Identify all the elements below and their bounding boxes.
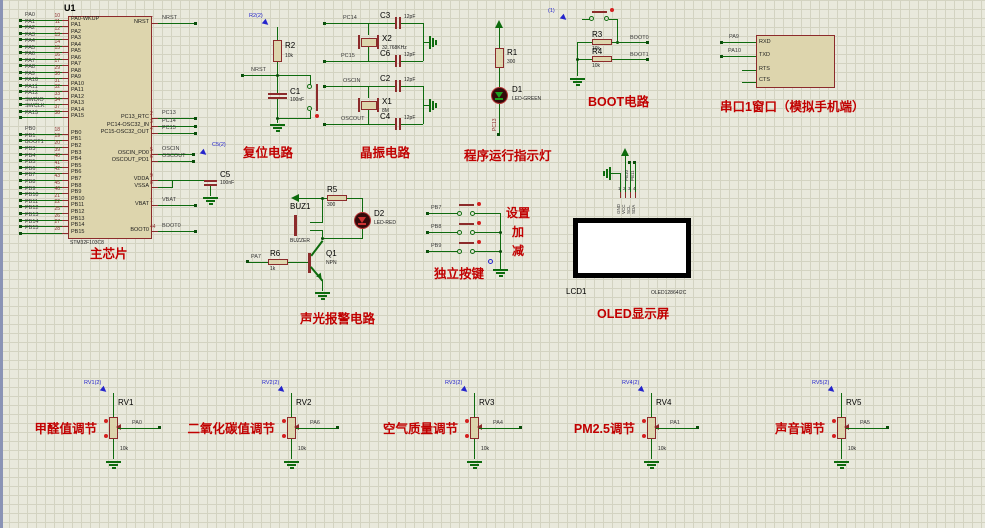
wire (368, 110, 369, 124)
wire-end-dot (19, 232, 22, 235)
crystal[interactable] (361, 101, 377, 110)
wire (325, 124, 395, 125)
pot-net-label: PA5 (860, 421, 870, 427)
cap-ref: C2 (380, 75, 390, 83)
ground-icon (209, 203, 213, 205)
pot-pin-dot (642, 434, 646, 438)
boot-r-value: 10k (592, 64, 600, 69)
wire-end-dot (194, 132, 197, 135)
pot-power-flag-label: RV5(2) (812, 381, 829, 387)
chip-pin (62, 173, 68, 174)
cap-ref: C6 (380, 50, 390, 58)
pot-power-flag-label: RV1(2) (84, 381, 101, 387)
button-contact (457, 211, 462, 216)
pin-number: 39 (48, 148, 60, 153)
key-function-label: 设置 (506, 207, 530, 219)
pin-number: 5 (150, 148, 153, 153)
pot-value: 10k (298, 447, 306, 452)
oled-pin-number: 3 (628, 187, 631, 192)
pin-number: 34 (48, 98, 60, 103)
pin-inner-name: VSSA (71, 184, 149, 190)
pin-number: 13 (48, 33, 60, 38)
ground-icon[interactable] (284, 461, 299, 463)
crystal-title: 晶振电路 (360, 147, 410, 160)
pot-pin-dot (465, 419, 469, 423)
pin-number: 4 (150, 127, 153, 132)
key-function-label: 加 (512, 226, 524, 238)
wire (288, 262, 308, 263)
ground-icon[interactable] (467, 461, 482, 463)
xtal-ref: X2 (382, 35, 392, 43)
pot-function-label: PM2.5调节 (574, 423, 635, 436)
wire-end-dot (646, 41, 649, 44)
wire (499, 27, 500, 48)
wire (277, 99, 278, 118)
pot-ref: RV4 (656, 399, 671, 407)
pin-net-label: PA10 (25, 78, 38, 84)
ground-icon (576, 84, 580, 86)
wire-end-dot (19, 116, 22, 119)
pin-number: 22 (48, 200, 60, 205)
power-flag-icon[interactable] (278, 386, 286, 394)
pin-number: 27 (48, 220, 60, 225)
pin-net-label: SWCLK (25, 104, 45, 110)
wire (172, 180, 173, 188)
power-flag-icon[interactable] (100, 386, 108, 394)
wire-end-dot (19, 90, 22, 93)
r6-ref: R6 (270, 250, 280, 258)
ground-icon (432, 38, 434, 47)
wire (158, 180, 172, 181)
wire (841, 393, 842, 417)
pot-power-flag-label: RV3(2) (445, 381, 462, 387)
wire-end-dot (19, 212, 22, 215)
wire-end-dot (19, 64, 22, 67)
pin-inner-name: PB9 (71, 190, 81, 196)
terminal-pin-name: RTS (759, 67, 770, 73)
pa9-net-label: PA9 (729, 35, 739, 41)
ground-icon[interactable] (570, 78, 585, 80)
wire-end-dot (19, 77, 22, 80)
crystal-plate (377, 35, 379, 49)
button-contact (307, 84, 312, 89)
pin-number: 12 (48, 27, 60, 32)
resistor[interactable] (592, 39, 612, 45)
wire (474, 393, 475, 417)
wire (651, 393, 652, 417)
wire-end-dot (19, 192, 22, 195)
chip-pin (62, 193, 68, 194)
buz1-ref: BUZ1 (290, 203, 310, 211)
cap-value: 12pF (404, 15, 415, 20)
pushbutton[interactable] (459, 204, 474, 206)
chip-pin (62, 213, 68, 214)
wire (325, 61, 395, 62)
wire-end-dot (194, 230, 197, 233)
c5-value: 100nF (220, 181, 234, 186)
pin-number: 26 (48, 214, 60, 219)
pin-number: 29 (48, 66, 60, 71)
wire-end-dot (19, 179, 22, 182)
chip-label: 主芯片 (90, 248, 128, 261)
ground-icon[interactable] (270, 124, 285, 126)
pot-pin-dot (104, 419, 108, 423)
pot-net-label: PA6 (310, 421, 320, 427)
chip-ref: U1 (64, 4, 76, 13)
wire-end-dot (336, 426, 339, 429)
keys-title: 独立按键 (434, 268, 484, 281)
wire (612, 59, 648, 60)
capacitor[interactable] (395, 55, 397, 67)
wire (322, 230, 323, 238)
wire (158, 205, 195, 206)
pin-number: 21 (48, 194, 60, 199)
pin-net-label: PC15 (162, 126, 176, 132)
chip-pin (62, 206, 68, 207)
wire (401, 86, 423, 87)
boot-r-ref: R3 (592, 31, 602, 39)
pin-number: 6 (150, 155, 153, 160)
wire (499, 104, 500, 135)
pushbutton[interactable] (316, 84, 318, 111)
chip-pin (62, 78, 68, 79)
pc13-net-label: PC13 (493, 118, 498, 131)
pin-inner-name: PC14-OSC32_IN (71, 123, 149, 129)
wire (277, 27, 278, 40)
pin-net-label: PB0 (25, 127, 35, 133)
power-flag-icon[interactable] (560, 14, 568, 22)
pin-net-label: PB15 (25, 226, 38, 232)
chip-pin (620, 192, 621, 198)
wire (22, 233, 62, 234)
wire (22, 117, 62, 118)
ground-icon (473, 467, 477, 469)
schematic-canvas[interactable]: U1STM32F103C8主芯片PA010PA0-WKUPPA111PA1PA2… (0, 0, 985, 528)
pin-number: 9 (150, 174, 153, 179)
pin-net-label: PA15 (25, 111, 38, 117)
button-indicator (315, 114, 319, 118)
net-label: OSCOUT (341, 117, 365, 123)
sheet-edge (0, 0, 3, 528)
resistor-r6[interactable] (268, 259, 288, 265)
chip-pin (62, 65, 68, 66)
ground-icon[interactable] (315, 292, 330, 294)
ground-icon (606, 169, 608, 178)
terminal-pin-name: RXD (759, 40, 771, 46)
wire (296, 428, 338, 429)
ground-icon[interactable] (106, 461, 121, 463)
pin-number: 33 (48, 92, 60, 97)
wire (401, 124, 423, 125)
wire (617, 19, 618, 43)
wire (347, 198, 362, 199)
wire-end-dot (19, 205, 22, 208)
ground-icon[interactable] (493, 269, 508, 271)
d1-type: LED-GREEN (512, 97, 541, 102)
wire (325, 86, 395, 87)
chip-pin (62, 104, 68, 105)
chip-pin (62, 20, 68, 21)
pin-number: 15 (48, 46, 60, 51)
pot-function-label: 甲醛值调节 (34, 423, 97, 436)
chip-pin (62, 52, 68, 53)
pin-number: 16 (48, 53, 60, 58)
ground-icon (496, 272, 505, 274)
pin-net-label: PA4 (25, 39, 35, 45)
r5-ref: R5 (327, 186, 337, 194)
pin-number: 2 (150, 112, 153, 117)
c1-value: 100nF (290, 98, 304, 103)
wire (310, 230, 322, 231)
capacitor[interactable] (268, 93, 287, 95)
wire (322, 280, 323, 291)
pin-number: 17 (48, 59, 60, 64)
power-flag-icon[interactable] (262, 19, 270, 27)
wire (291, 439, 292, 459)
pot-pin-dot (465, 434, 469, 438)
power-arrow-icon[interactable] (291, 194, 299, 202)
power-flag-icon[interactable] (461, 386, 469, 394)
ground-icon (499, 275, 503, 277)
ground-icon (603, 171, 605, 176)
chip-pin (62, 140, 68, 141)
pot-power-flag-label: RV4(2) (622, 381, 639, 387)
capacitor[interactable] (395, 80, 397, 92)
xtal-value: 32.768KHz (382, 46, 407, 51)
chip-pin (62, 180, 68, 181)
terminal-pin-name: TXD (759, 53, 770, 59)
pin-number: 20 (48, 141, 60, 146)
wire-end-dot (19, 103, 22, 106)
ground-icon (287, 464, 296, 466)
chip-pin (62, 39, 68, 40)
key-function-label: 减 (512, 245, 524, 257)
wire (158, 133, 195, 134)
wire (401, 23, 423, 24)
power-flag-icon[interactable] (200, 149, 208, 157)
r1-ref: R1 (507, 49, 517, 57)
runled-title: 程序运行指示灯 (464, 150, 552, 163)
oled-pin-number: 2 (623, 187, 626, 192)
lcd1-ref: LCD1 (566, 288, 586, 296)
ground-icon (650, 467, 654, 469)
pin-net-label: PA2 (25, 26, 35, 32)
resistor[interactable] (592, 56, 612, 62)
pot-wiper-icon (844, 424, 849, 430)
pin-number: 41 (48, 161, 60, 166)
crystal[interactable] (361, 38, 377, 47)
wire (368, 23, 369, 35)
wire (722, 42, 756, 43)
pot-wiper-icon (116, 424, 121, 430)
ground-icon[interactable] (429, 99, 431, 112)
key-net-label: PB7 (431, 206, 441, 212)
lcd1-part: OLED12864I2C (651, 291, 686, 296)
pin-number: 43 (48, 174, 60, 179)
chip-part: STM32F103C8 (70, 241, 104, 246)
pot-pin-dot (104, 434, 108, 438)
ground-icon (206, 200, 215, 202)
c5-ref: C5 (220, 171, 230, 179)
capacitor[interactable] (395, 118, 397, 130)
pot-function-label: 二氧化碳值调节 (187, 423, 275, 436)
ground-icon (290, 467, 294, 469)
pin-net-label: PB5 (25, 160, 35, 166)
wire (158, 231, 195, 232)
pot-pin-dot (642, 419, 646, 423)
wire (428, 251, 458, 252)
pin-net-label: PB10 (25, 193, 38, 199)
pin-net-label: PA0 (25, 13, 35, 19)
wire-end-dot (19, 25, 22, 28)
q1-type: NPN (326, 261, 337, 266)
resistor-r2[interactable] (273, 40, 282, 62)
terminal-pin-name: CTS (759, 78, 770, 84)
wire (401, 61, 423, 62)
ground-icon[interactable] (203, 197, 218, 199)
ground-icon (470, 464, 479, 466)
wire-end-dot (19, 172, 22, 175)
pin-net-label: VBAT (162, 198, 176, 204)
wire (612, 42, 648, 43)
xtal-value: 8M (382, 109, 389, 114)
wire-end-dot (19, 186, 22, 189)
ground-icon[interactable] (429, 36, 431, 49)
wire-end-dot (19, 146, 22, 149)
wire (475, 232, 500, 233)
chip-pin (62, 26, 68, 27)
wire (500, 213, 501, 266)
pot-function-label: 声音调节 (775, 423, 825, 436)
chip-pin (62, 72, 68, 73)
cap-ref: C3 (380, 12, 390, 20)
wire (118, 428, 160, 429)
pin-inner-name: PA13 (71, 101, 84, 107)
pot-wiper-icon (294, 424, 299, 430)
pin-number: 30 (48, 72, 60, 77)
resistor-r1[interactable] (495, 48, 504, 68)
chip-pin (625, 192, 626, 198)
wire (742, 82, 756, 83)
r6-value: 1k (270, 267, 275, 272)
resistor-r5[interactable] (327, 195, 347, 201)
pin-net-label: PC13 (162, 111, 176, 117)
pot-value: 10k (658, 447, 666, 452)
wire (479, 428, 521, 429)
pin-net-label: OSCOUT (162, 154, 186, 160)
ground-icon[interactable] (644, 461, 659, 463)
wire (248, 262, 268, 263)
boot-title: BOOT电路 (588, 96, 649, 109)
pin-number: 38 (48, 111, 60, 116)
pin-number: 25 (48, 207, 60, 212)
capacitor[interactable] (204, 180, 217, 182)
crystal-plate (377, 98, 379, 112)
wire-end-dot (19, 32, 22, 35)
wire (722, 56, 756, 57)
power-flag-icon[interactable] (828, 386, 836, 394)
chip-pin (62, 91, 68, 92)
button-indicator (477, 202, 481, 206)
pot-pin-dot (832, 419, 836, 423)
pin-number: 46 (48, 187, 60, 192)
pot-wiper-icon (477, 424, 482, 430)
pushbutton[interactable] (459, 223, 474, 225)
alarm-title: 声光报警电路 (300, 313, 375, 326)
wire (656, 428, 698, 429)
c5-power-flag-label: C5(2) (212, 143, 226, 149)
pushbutton[interactable] (592, 11, 607, 13)
chip-pin (62, 111, 68, 112)
ground-icon (435, 103, 437, 108)
pin-number: 1 (150, 199, 153, 204)
button-contact (457, 249, 462, 254)
chip-pin (62, 226, 68, 227)
capacitor[interactable] (395, 17, 397, 29)
oled-pin-name: SDA (632, 205, 637, 214)
xtal-ref: X1 (382, 98, 392, 106)
wire-end-dot (19, 19, 22, 22)
wire-end-dot (519, 426, 522, 429)
ground-icon (837, 464, 846, 466)
chip-pin (62, 85, 68, 86)
cap-value: 12pF (404, 78, 415, 83)
cap-ref: C4 (380, 113, 390, 121)
wire (742, 70, 756, 71)
wire-end-dot (19, 225, 22, 228)
ground-icon[interactable] (834, 461, 849, 463)
chip-pin (630, 192, 631, 198)
oled-display[interactable] (573, 218, 691, 278)
power-flag-icon[interactable] (638, 386, 646, 394)
wire (291, 393, 292, 417)
wire (322, 238, 363, 239)
junction-dot (276, 74, 279, 77)
junction-dot (576, 58, 579, 61)
pin-number: 14 (48, 40, 60, 45)
net-label: OSCIN (343, 79, 360, 85)
pot-value: 10k (848, 447, 856, 452)
wire-end-dot (19, 71, 22, 74)
wire-end-dot (194, 204, 197, 207)
ground-icon (276, 130, 280, 132)
wire (158, 161, 193, 162)
chip-pin (62, 200, 68, 201)
pot-wiper-icon (654, 424, 659, 430)
junction-dot (321, 197, 324, 200)
wire-end-dot (19, 45, 22, 48)
crystal-plate (358, 98, 360, 112)
pin-number: 8 (150, 181, 153, 186)
pa10-net-label: PA10 (728, 49, 741, 55)
pin-net-label: PB3 (25, 147, 35, 153)
wire (113, 393, 114, 417)
pushbutton[interactable] (459, 242, 474, 244)
wire-end-dot (158, 426, 161, 429)
oled-scl-net-label: PB10 (625, 170, 630, 181)
chip-pin (62, 46, 68, 47)
pin-number: 45 (48, 181, 60, 186)
pot-ref: RV2 (296, 399, 311, 407)
wire-end-dot (19, 166, 22, 169)
wire (113, 439, 114, 459)
wire (651, 439, 652, 459)
button-contact (457, 230, 462, 235)
pin-number: 18 (48, 128, 60, 133)
wire-end-dot (19, 84, 22, 87)
chip-pin (62, 187, 68, 188)
button-contact (589, 16, 594, 21)
